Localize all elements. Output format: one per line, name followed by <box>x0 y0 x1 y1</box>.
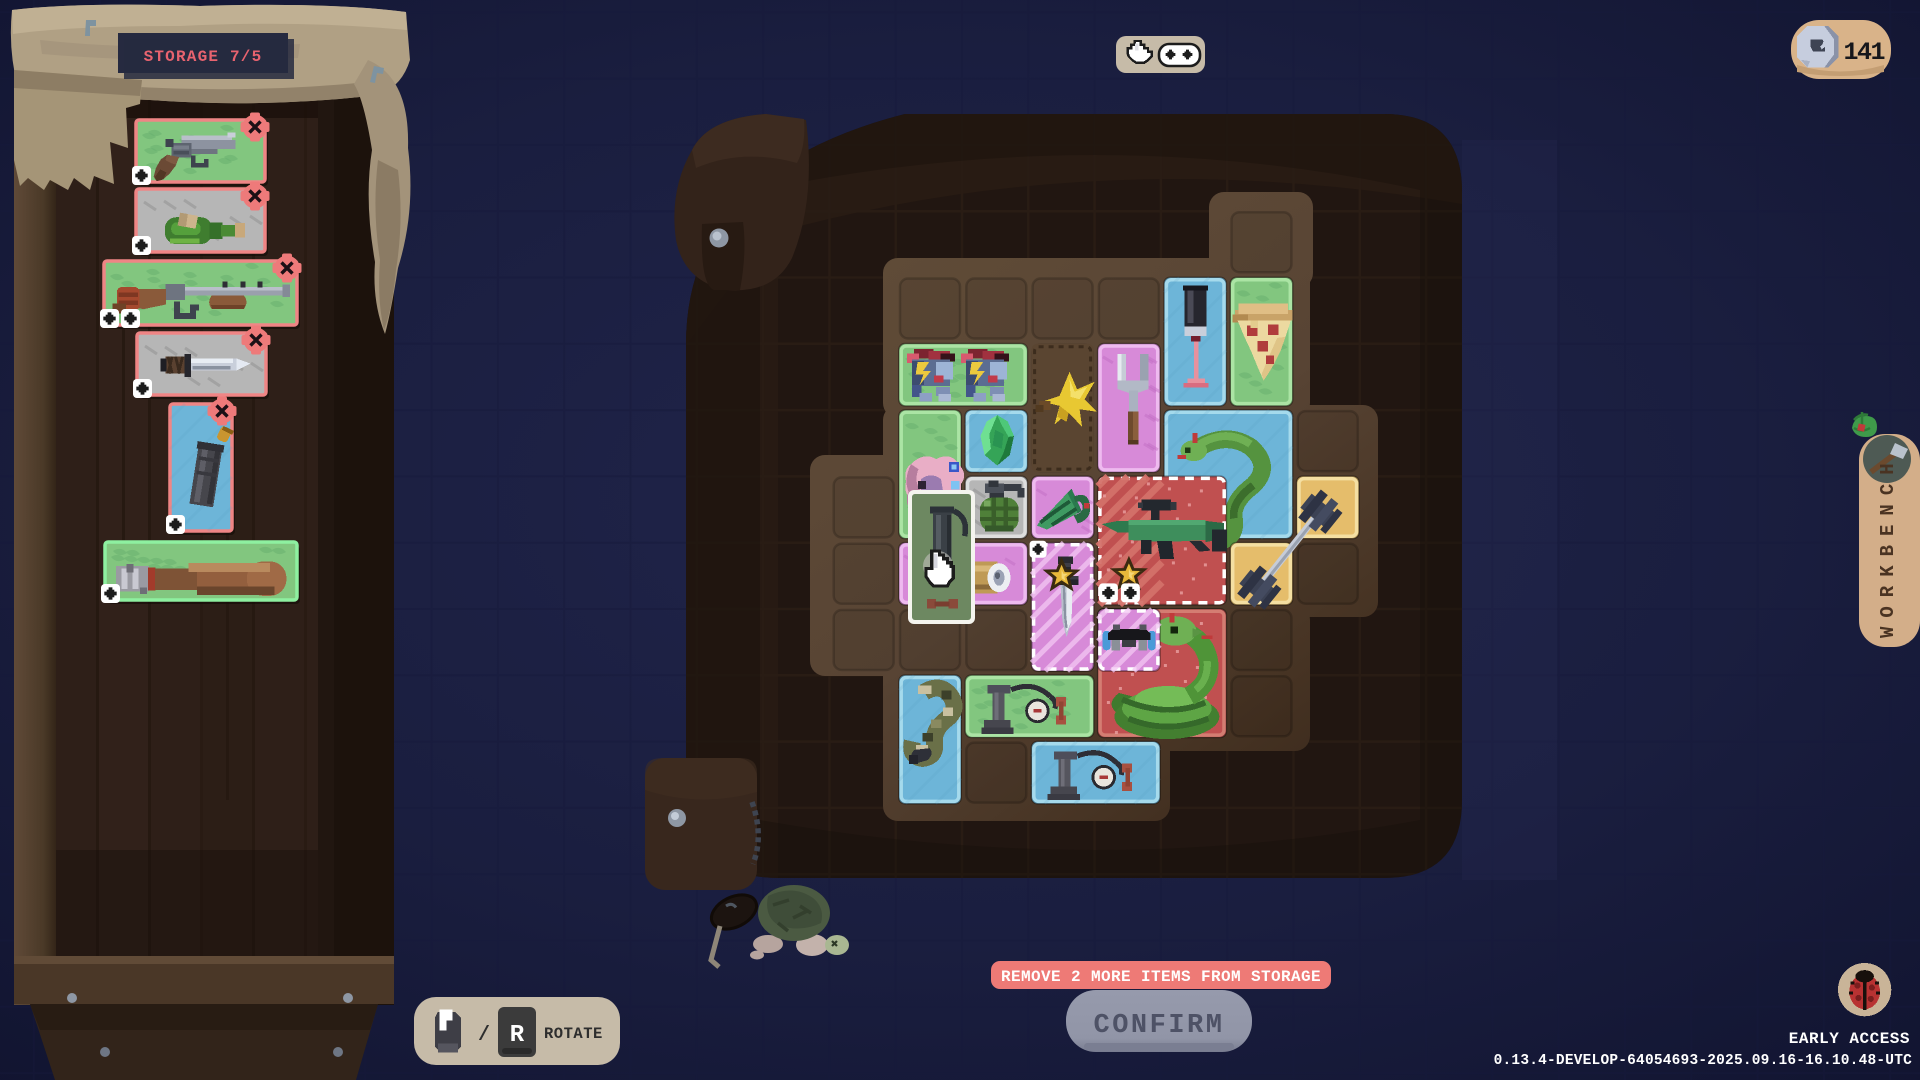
svg-text:WORKBENCH: WORKBENCH <box>1877 454 1899 638</box>
svg-text:141: 141 <box>1843 38 1884 67</box>
svg-text:EARLY ACCESS: EARLY ACCESS <box>1789 1030 1910 1048</box>
svg-text:ROTATE: ROTATE <box>544 1025 603 1043</box>
svg-text:/: / <box>478 1024 490 1047</box>
svg-text:STORAGE 7/5: STORAGE 7/5 <box>144 48 263 66</box>
svg-text:R: R <box>510 1022 525 1049</box>
svg-text:0.13.4-DEVELOP-64054693-2025.0: 0.13.4-DEVELOP-64054693-2025.09.16-16.10… <box>1494 1053 1912 1069</box>
svg-text:REMOVE 2 MORE ITEMS FROM STORA: REMOVE 2 MORE ITEMS FROM STORAGE <box>1001 968 1321 986</box>
svg-text:CONFIRM: CONFIRM <box>1094 1011 1225 1041</box>
